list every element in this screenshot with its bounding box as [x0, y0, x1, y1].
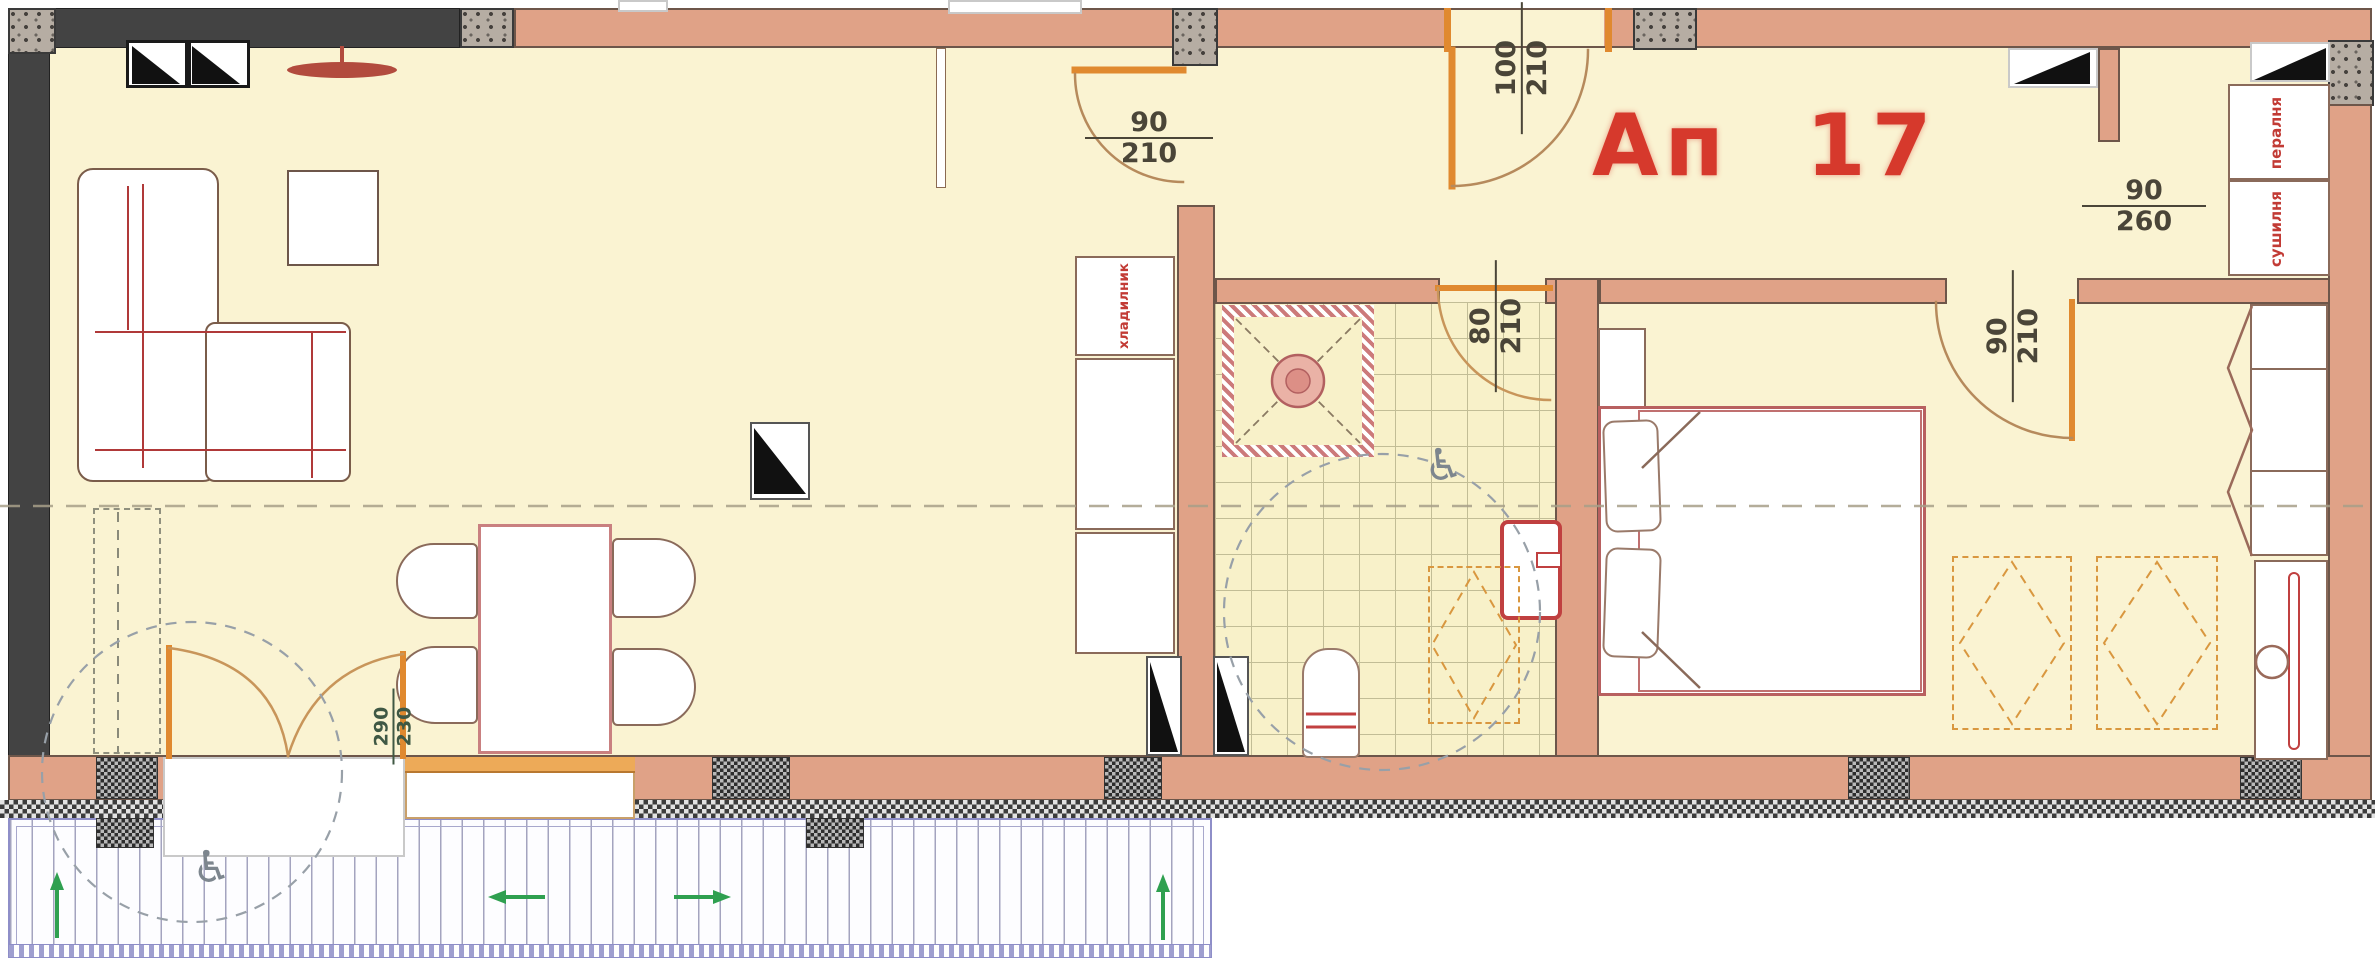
bed-mattress [1638, 410, 1922, 692]
terrace-edge-band [8, 944, 1212, 958]
wardrobe-shelf-1 [2252, 368, 2326, 370]
footing-block-1 [96, 818, 154, 848]
dimension-bathroom-door-width: 80 [1466, 260, 1495, 392]
footing-block-2 [806, 818, 864, 848]
wheelchair-icon-balcony: ♿ [192, 842, 231, 893]
entrance-door-jamb-left [1444, 8, 1451, 52]
wall-bathroom-top-left [1215, 278, 1440, 304]
dimension-utility-window-height: 260 [2082, 205, 2206, 236]
coffee-table [287, 170, 379, 266]
dimension-living-door: 90 210 [1085, 108, 1213, 168]
window-marker-box-2 [188, 40, 250, 88]
window-marker-box-4 [2250, 42, 2330, 82]
dimension-entrance-door-width: 100 [1492, 2, 1521, 134]
kitchen-partition [936, 48, 946, 188]
dining-chair-top-left [396, 543, 478, 619]
sofa-corner-horizontal [205, 322, 351, 482]
wall-hall-bedroom-left [1599, 278, 1947, 304]
dimension-bedroom-door: 90 210 [1983, 270, 2043, 402]
column-bottom-5 [2240, 757, 2302, 799]
dimension-living-door-width: 90 [1085, 108, 1213, 137]
wardrobe [2250, 304, 2328, 556]
dining-table [478, 524, 612, 754]
dimension-utility-window: 90 260 [2082, 176, 2206, 236]
column-top-1 [460, 8, 514, 48]
shower-tray [1222, 305, 1374, 457]
washing-machine-label: пералня [2267, 87, 2285, 179]
wall-right-exterior [2328, 104, 2372, 790]
vent-shaft-right [1213, 656, 1249, 756]
dimension-living-door-height: 210 [1085, 137, 1213, 168]
future-furniture-outline [93, 508, 161, 754]
dimension-bathroom-door: 80 210 [1466, 260, 1526, 392]
sink-tap [1536, 552, 1562, 568]
dimension-bedroom-door-width: 90 [1983, 270, 2012, 402]
dimension-balcony-door-width: 290 [371, 689, 392, 765]
wall-bathroom-bedroom [1555, 278, 1599, 757]
column-bottom-4 [1848, 757, 1910, 799]
dimension-bathroom-door-height: 210 [1495, 260, 1526, 392]
wheelchair-icon-bathroom: ♿ [1424, 440, 1463, 491]
bed-pillow-bottom [1602, 547, 1662, 659]
rug-outline-2 [2096, 556, 2218, 730]
window-marker-box-1 [126, 40, 188, 88]
dining-chair-bottom-right [612, 648, 696, 726]
entrance-door-jamb-right [1605, 8, 1612, 52]
column-bottom-2 [712, 757, 790, 799]
refrigerator-label: хладилник [1116, 256, 1132, 356]
toilet [1302, 648, 1360, 758]
dryer-label: сушилня [2267, 183, 2285, 275]
dimension-entrance-door-height: 210 [1521, 2, 1552, 134]
dimension-utility-window-width: 90 [2082, 176, 2206, 205]
wall-top-exterior [514, 8, 2372, 48]
column-top-right [2328, 40, 2374, 106]
dining-chair-top-right [612, 538, 696, 618]
column-top-left-corner [8, 8, 56, 54]
dimension-balcony-door-height: 230 [392, 689, 415, 765]
kitchen-cabinet-2 [1075, 532, 1175, 654]
floor-plan: 90 210 100 210 80 210 90 210 90 260 290 … [0, 0, 2375, 969]
sofa-corner-vertical [77, 168, 219, 482]
column-top-2 [1172, 8, 1218, 66]
living-window-frame [405, 757, 635, 773]
dresser-bar [2288, 572, 2300, 750]
wall-kitchen-bathroom [1177, 205, 1215, 757]
washer-space-outline [1428, 566, 1520, 724]
column-bottom-1 [96, 757, 158, 799]
nightstand [1598, 328, 1646, 410]
wall-left-exterior [8, 8, 50, 770]
rug-outline-1 [1952, 556, 2072, 730]
bed-pillow-top [1602, 419, 1662, 533]
apartment-number-label: Ап 17 [1592, 96, 1938, 196]
vent-shaft-left [1146, 656, 1182, 756]
dimension-balcony-door: 290 230 [371, 689, 414, 765]
wall-laundry-stub [2098, 48, 2120, 142]
kitchen-cabinet-1 [1075, 358, 1175, 530]
dimension-entrance-door: 100 210 [1492, 2, 1552, 134]
column-top-3 [1633, 8, 1697, 50]
column-bottom-3 [1104, 757, 1162, 799]
window-marker-box-3 [2008, 48, 2098, 88]
dimension-bedroom-door-height: 210 [2012, 270, 2043, 402]
neighbour-fixture-2 [948, 0, 1082, 14]
wardrobe-shelf-2 [2252, 470, 2326, 472]
wall-hall-bedroom-right [2077, 278, 2330, 304]
neighbour-fixture-1 [618, 0, 668, 12]
vent-shaft-living [750, 422, 810, 500]
